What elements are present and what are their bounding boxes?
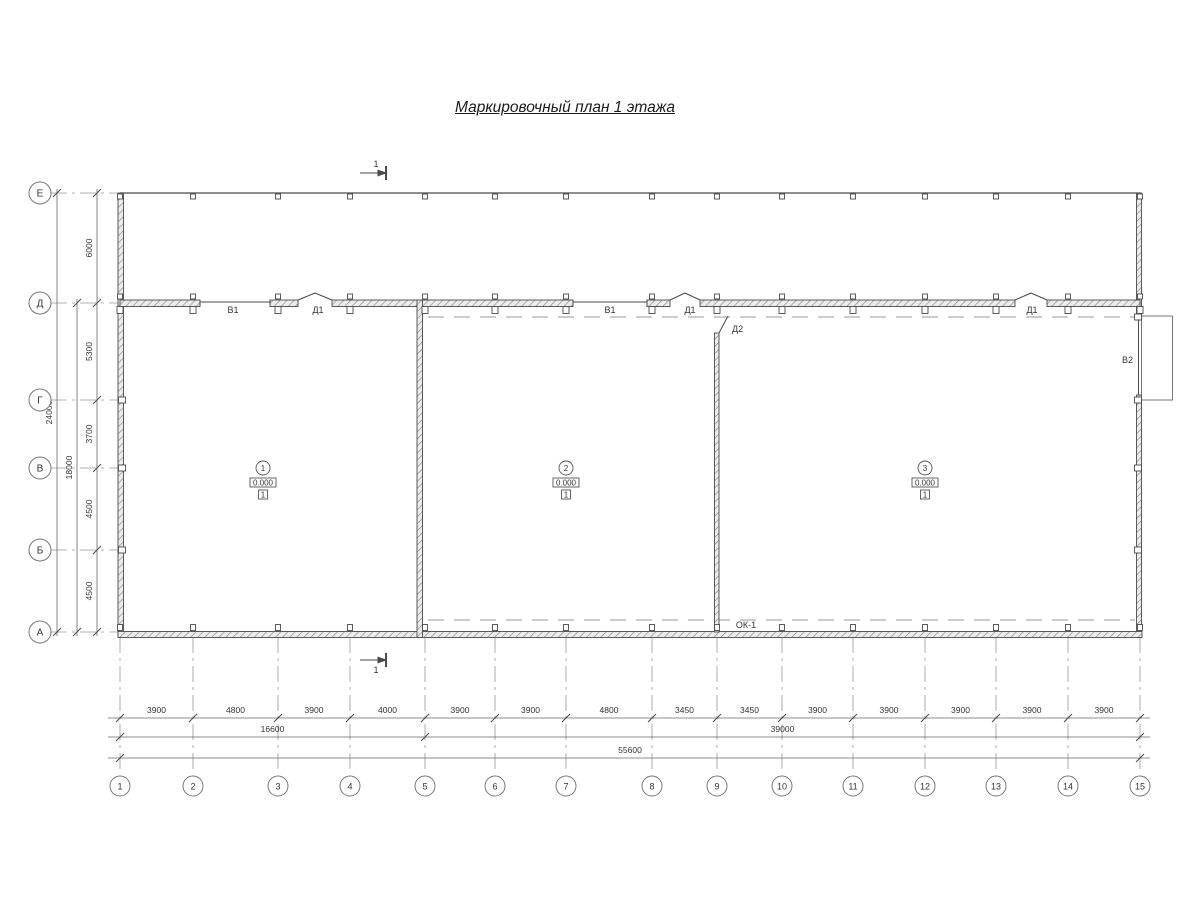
drawing-title: Маркировочный план 1 этажа <box>0 99 1130 117</box>
wall-interior-axis9 <box>715 333 720 632</box>
room-elevation: 0.000 <box>556 479 577 488</box>
axis-bubble-bottom-label: 15 <box>1135 782 1145 792</box>
column-marker-D-top <box>715 294 720 299</box>
axis-bubble-left-label: Б <box>37 546 44 557</box>
dim-label-bottom: 3900 <box>1095 705 1114 715</box>
dim-label-bottom: 3900 <box>951 705 970 715</box>
dim-label-bottom: 3900 <box>451 705 470 715</box>
column-marker-D-top <box>118 294 123 299</box>
door-d1-leaf <box>315 293 332 300</box>
column-marker-D-bottom <box>117 307 123 314</box>
wall-D-segment <box>700 300 1015 307</box>
dim-label-left: 4500 <box>84 581 94 600</box>
overhead-dashed-lines <box>428 317 1135 620</box>
column-marker-D-bottom <box>714 307 720 314</box>
wall-interior-axis5 <box>417 300 423 638</box>
axis-bubble-bottom-label: 10 <box>777 782 787 792</box>
section-mark-label: 1 <box>373 665 378 675</box>
wall-D-segment <box>647 300 670 307</box>
dim-label-left: 3700 <box>84 424 94 443</box>
column-marker-left-wall <box>119 397 126 403</box>
door-d1-leaf <box>670 293 685 300</box>
room-floor-type: 1 <box>564 491 569 500</box>
axis-bubble-bottom-label: 9 <box>714 782 719 792</box>
column-marker-E <box>994 194 999 199</box>
column-marker-E <box>423 194 428 199</box>
column-marker-E <box>191 194 196 199</box>
wall-D-segment <box>332 300 573 307</box>
column-marker-D-bottom <box>779 307 785 314</box>
column-marker-A <box>493 625 498 631</box>
axis-bubble-left-label: Г <box>37 396 43 407</box>
column-marker-A <box>923 625 928 631</box>
dim-label-left: 5300 <box>84 342 94 361</box>
column-marker-E <box>348 194 353 199</box>
column-marker-right-wall <box>1135 465 1142 471</box>
column-marker-D-bottom <box>492 307 498 314</box>
column-marker-D-top <box>276 294 281 299</box>
bottom-dimension-labels: 3900480039004000390039004800345034503900… <box>147 705 1114 755</box>
column-marker-D-bottom <box>1137 307 1143 314</box>
column-marker-A <box>780 625 785 631</box>
column-marker-A <box>348 625 353 631</box>
room-number: 2 <box>564 464 569 473</box>
dim-label-bottom: 3900 <box>1023 705 1042 715</box>
section-mark-label: 1 <box>373 159 378 169</box>
column-marker-D-bottom <box>1065 307 1071 314</box>
axis-bubble-bottom-label: 8 <box>649 782 654 792</box>
column-marker-D-bottom <box>347 307 353 314</box>
column-marker-D-top <box>191 294 196 299</box>
axis-bubble-left-label: А <box>37 628 44 639</box>
column-marker-E <box>564 194 569 199</box>
dim-label-bottom: 4000 <box>378 705 397 715</box>
axis-bubble-bottom-label: 3 <box>275 782 280 792</box>
axis-bubble-left-label: В <box>37 464 44 475</box>
column-marker-A <box>994 625 999 631</box>
section-marks: 11 <box>360 159 386 675</box>
dim-label-bottom-subtotal: 16600 <box>261 724 285 734</box>
column-marker-A <box>423 625 428 631</box>
column-marker-D-bottom <box>563 307 569 314</box>
v2-outside-apron <box>1142 316 1173 400</box>
column-marker-E <box>118 194 123 199</box>
dim-label-bottom: 3450 <box>740 705 759 715</box>
wall-D-segment <box>120 300 200 307</box>
column-marker-A <box>276 625 281 631</box>
axis-bubbles: ЕДГВБА123456789101112131415 <box>29 182 1150 796</box>
column-marker-E <box>493 194 498 199</box>
dim-label-left: 6000 <box>84 238 94 257</box>
column-marker-E <box>923 194 928 199</box>
opening-label-в1: В1 <box>227 305 238 315</box>
left-dimension-labels: 600053003700450045001800024000 <box>44 238 94 600</box>
room-elevation: 0.000 <box>915 479 936 488</box>
column-marker-E <box>780 194 785 199</box>
column-marker-D-top <box>1138 294 1143 299</box>
dim-label-bottom: 3900 <box>147 705 166 715</box>
column-marker-A <box>1066 625 1071 631</box>
door-d1-leaf <box>685 293 700 300</box>
dim-label-bottom: 3900 <box>305 705 324 715</box>
dim-label-bottom: 3900 <box>808 705 827 715</box>
wall-D-segment <box>270 300 298 307</box>
axis-bubble-left-label: Е <box>37 189 44 200</box>
dim-label-bottom: 4800 <box>226 705 245 715</box>
column-marker-D-top <box>923 294 928 299</box>
door-d1-leaf <box>1015 293 1031 300</box>
room-floor-type: 1 <box>261 491 266 500</box>
opening-label-д1: Д1 <box>684 305 695 315</box>
wall-left <box>118 193 124 638</box>
door-d1-leaf <box>1031 293 1047 300</box>
column-marker-E <box>1066 194 1071 199</box>
column-marker-E <box>715 194 720 199</box>
column-marker-A <box>715 625 720 631</box>
walls <box>118 193 1142 638</box>
drawing-title-text: Маркировочный план 1 этажа <box>455 99 675 116</box>
room-elevation: 0.000 <box>253 479 274 488</box>
opening-label-в2: В2 <box>1122 355 1133 365</box>
drawing-sheet: Маркировочный план 1 этажа 6000530037004… <box>0 0 1200 900</box>
dim-label-bottom-subtotal: 39000 <box>771 724 795 734</box>
opening-label-ок-1: ОК-1 <box>736 620 756 630</box>
column-marker-A <box>564 625 569 631</box>
axis-bubble-left-label: Д <box>37 299 44 310</box>
axis-bubble-bottom-label: 5 <box>422 782 427 792</box>
opening-label-д1: Д1 <box>312 305 323 315</box>
column-marker-D-top <box>1066 294 1071 299</box>
column-marker-D-bottom <box>922 307 928 314</box>
axis-bubble-bottom-label: 2 <box>190 782 195 792</box>
opening-labels: В1Д1В1Д1Д2Д1В2ОК-1 <box>227 305 1133 630</box>
room-floor-type: 1 <box>923 491 928 500</box>
door-d1-leaf <box>298 293 315 300</box>
column-marker-D-bottom <box>275 307 281 314</box>
axis-bubble-bottom-label: 6 <box>492 782 497 792</box>
room-number: 1 <box>261 464 266 473</box>
axis-bubble-bottom-label: 1 <box>117 782 122 792</box>
dim-label-bottom-total: 55600 <box>618 745 642 755</box>
dim-label-left-subtotal: 18000 <box>64 455 74 479</box>
column-marker-E <box>851 194 856 199</box>
section-mark-arrow <box>378 170 386 176</box>
column-marker-D-top <box>780 294 785 299</box>
column-marker-D-top <box>564 294 569 299</box>
axis-bubble-bottom-label: 14 <box>1063 782 1073 792</box>
column-marker-E <box>276 194 281 199</box>
column-marker-D-bottom <box>993 307 999 314</box>
wall-D-segment <box>1047 300 1140 307</box>
axis-bubble-bottom-label: 11 <box>848 782 857 792</box>
opening-label-в1: В1 <box>604 305 615 315</box>
column-marker-A <box>851 625 856 631</box>
column-marker-A <box>650 625 655 631</box>
column-marker-A <box>1138 625 1143 631</box>
dim-label-bottom: 3900 <box>880 705 899 715</box>
column-marker-D-bottom <box>190 307 196 314</box>
column-marker-D-top <box>994 294 999 299</box>
wall-A <box>118 632 1142 638</box>
axis-bubble-bottom-label: 13 <box>991 782 1001 792</box>
dim-label-bottom: 3450 <box>675 705 694 715</box>
axis-bubble-bottom-label: 7 <box>563 782 568 792</box>
opening-label-д2: Д2 <box>732 324 743 334</box>
axis-bubble-bottom-label: 12 <box>920 782 930 792</box>
column-marker-D-top <box>493 294 498 299</box>
column-marker-D-bottom <box>422 307 428 314</box>
room-markers: 10.000120.000130.0001 <box>250 461 938 500</box>
dim-label-left: 4500 <box>84 499 94 518</box>
dim-label-bottom: 3900 <box>521 705 540 715</box>
column-marker-A <box>191 625 196 631</box>
column-marker-D-bottom <box>649 307 655 314</box>
column-marker-left-wall <box>119 547 126 553</box>
column-marker-D-top <box>423 294 428 299</box>
floor-plan-svg: 6000530037004500450018000240003900480039… <box>0 0 1200 900</box>
grid-axes <box>51 193 1140 774</box>
column-marker-E <box>650 194 655 199</box>
column-marker-right-wall <box>1135 397 1142 403</box>
column-marker-right-wall <box>1135 547 1142 553</box>
dim-label-bottom: 4800 <box>600 705 619 715</box>
column-marker-D-top <box>851 294 856 299</box>
column-marker-A <box>118 625 123 631</box>
column-marker-D-top <box>650 294 655 299</box>
column-marker-left-wall <box>119 465 126 471</box>
column-marker-E <box>1138 194 1143 199</box>
opening-label-д1: Д1 <box>1026 305 1037 315</box>
wall-right-lower <box>1137 395 1142 638</box>
column-marker-v2-top <box>1135 314 1142 320</box>
column-marker-D-top <box>348 294 353 299</box>
section-mark-arrow <box>378 657 386 663</box>
room-number: 3 <box>923 464 928 473</box>
column-marker-D-bottom <box>850 307 856 314</box>
column-markers <box>117 194 1143 631</box>
door-d2-leaf <box>719 316 728 333</box>
axis-bubble-bottom-label: 4 <box>347 782 352 792</box>
